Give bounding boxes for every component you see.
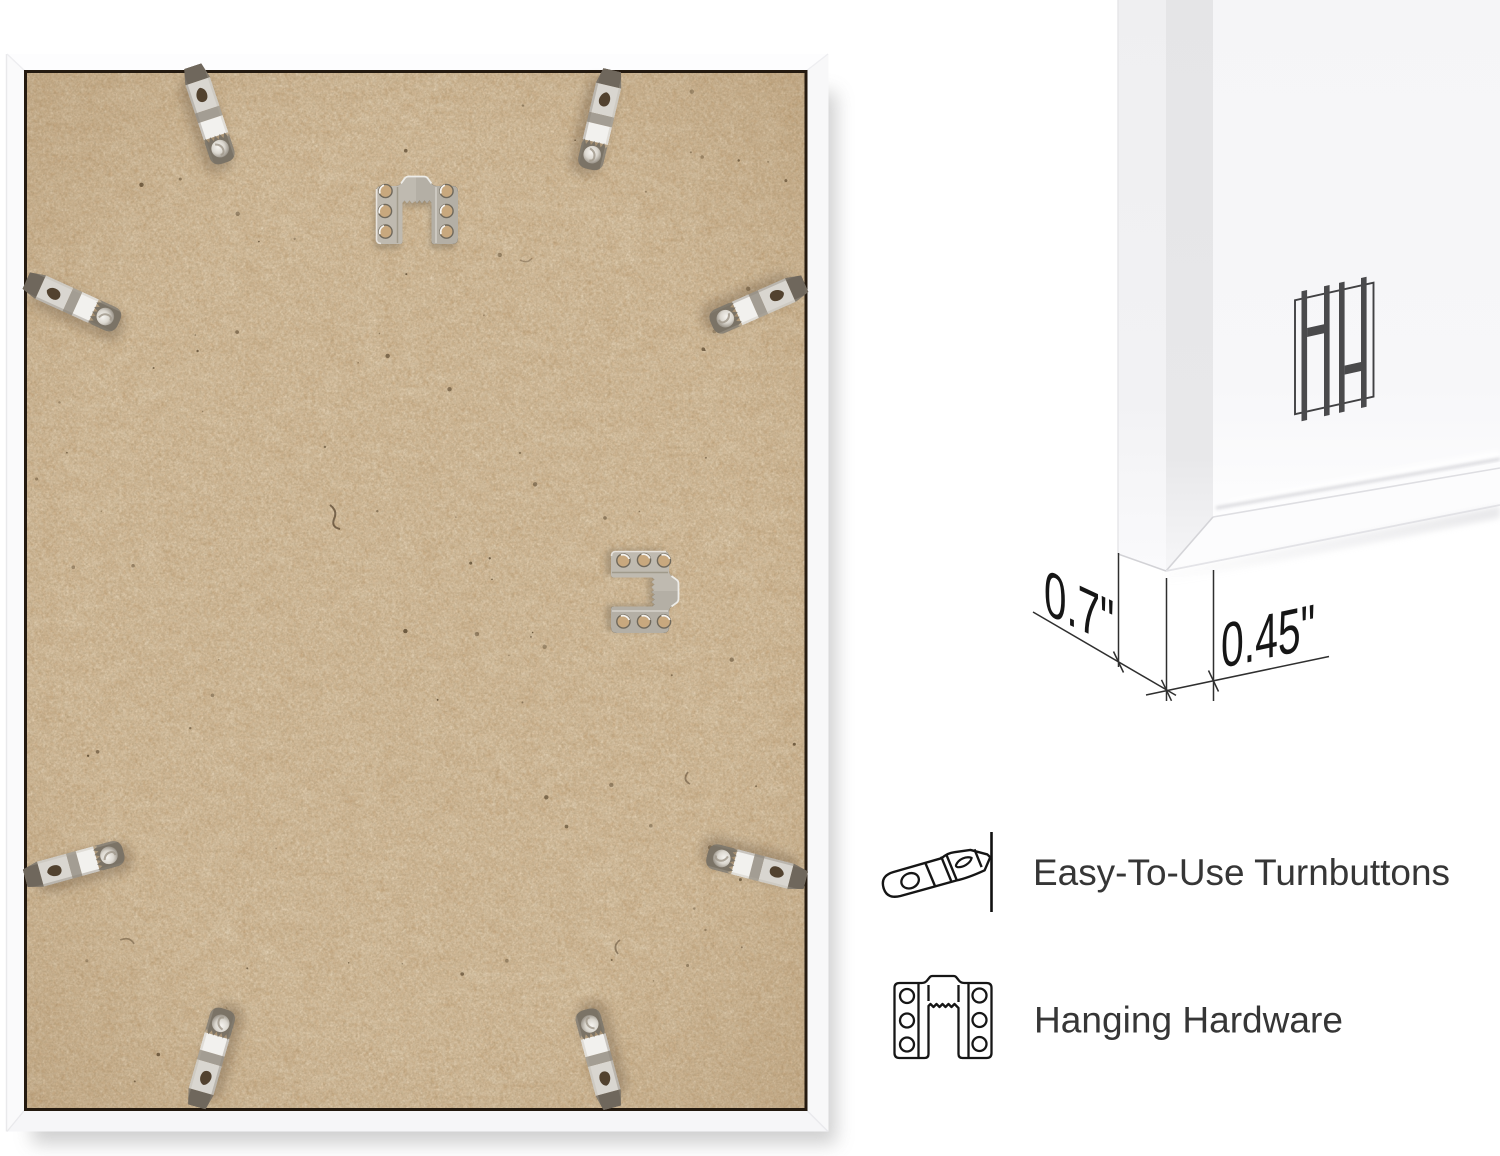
svg-text:Easy-To-Use Turnbuttons: Easy-To-Use Turnbuttons: [1033, 851, 1450, 893]
svg-text:Hanging Hardware: Hanging Hardware: [1034, 999, 1343, 1041]
